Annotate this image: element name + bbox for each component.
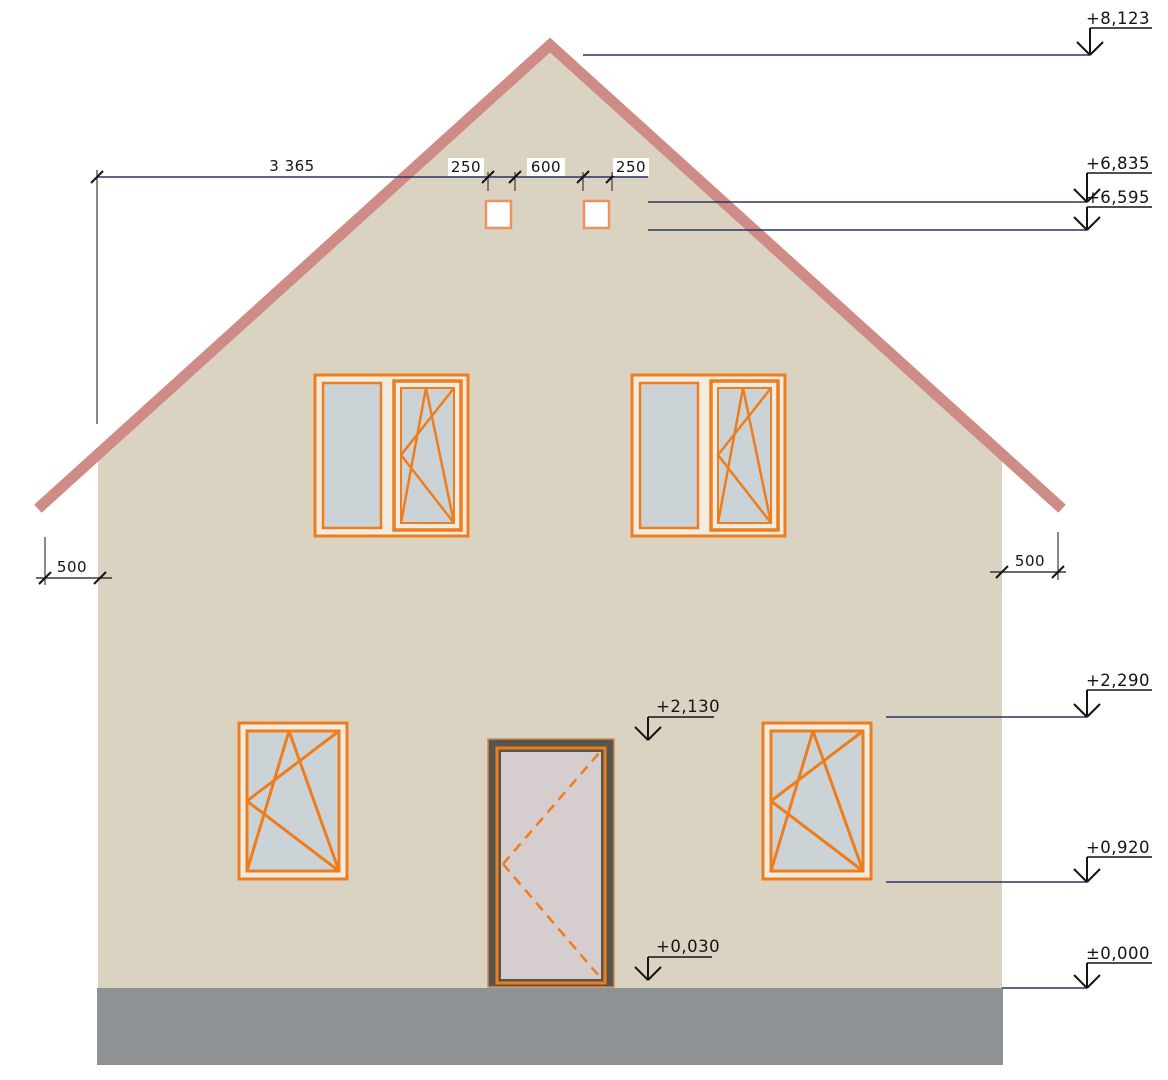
elevation-canvas: 3 365 250 600 250 500 500 +8,123 bbox=[0, 0, 1168, 1080]
level-attic-window-bottom: +6,595 bbox=[1086, 188, 1150, 207]
dim-overall-width: 3 365 bbox=[269, 157, 314, 175]
window-sash-glass bbox=[718, 388, 771, 523]
level-marker-ground: ±0,000 bbox=[1002, 944, 1152, 988]
level-door-head: +2,130 bbox=[656, 697, 720, 716]
marker-arrow bbox=[1090, 42, 1103, 55]
window-upper-left bbox=[315, 375, 468, 536]
window-sash-glass bbox=[247, 731, 339, 871]
dim-attic-window-left: 250 bbox=[451, 158, 481, 176]
window-upper-right bbox=[632, 375, 785, 536]
marker-arrow bbox=[1087, 217, 1100, 230]
level-ground: ±0,000 bbox=[1086, 944, 1150, 963]
level-door-threshold: +0,030 bbox=[656, 937, 720, 956]
window-lower-right bbox=[763, 723, 871, 879]
marker-arrow bbox=[1074, 704, 1087, 717]
foundation-strip bbox=[97, 988, 1003, 1065]
marker-arrow bbox=[1077, 42, 1090, 55]
level-marker-ridge: +8,123 bbox=[583, 9, 1152, 55]
dim-attic-gap: 600 bbox=[531, 158, 561, 176]
marker-arrow bbox=[1087, 869, 1100, 882]
entrance-door bbox=[488, 739, 614, 987]
attic-window-right bbox=[584, 201, 609, 228]
elevation-drawing: 3 365 250 600 250 500 500 +8,123 bbox=[0, 0, 1168, 1080]
marker-arrow bbox=[1074, 975, 1087, 988]
window-fixed-pane bbox=[640, 383, 698, 528]
level-window-sill: +0,920 bbox=[1086, 838, 1150, 857]
window-fixed-pane bbox=[323, 383, 381, 528]
marker-arrow bbox=[1074, 217, 1087, 230]
level-ridge: +8,123 bbox=[1086, 9, 1150, 28]
dim-attic-window-right: 250 bbox=[616, 158, 646, 176]
dim-overhang-left: 500 bbox=[57, 558, 87, 576]
level-attic-window-top: +6,835 bbox=[1086, 154, 1150, 173]
marker-arrow bbox=[1087, 975, 1100, 988]
window-sash-glass bbox=[401, 388, 454, 523]
window-lower-left bbox=[239, 723, 347, 879]
marker-arrow bbox=[1087, 704, 1100, 717]
level-window-head: +2,290 bbox=[1086, 671, 1150, 690]
window-sash-glass bbox=[771, 731, 863, 871]
door-leaf bbox=[501, 752, 601, 979]
marker-arrow bbox=[1074, 869, 1087, 882]
dim-overhang-right: 500 bbox=[1015, 552, 1045, 570]
attic-window-left bbox=[486, 201, 511, 228]
